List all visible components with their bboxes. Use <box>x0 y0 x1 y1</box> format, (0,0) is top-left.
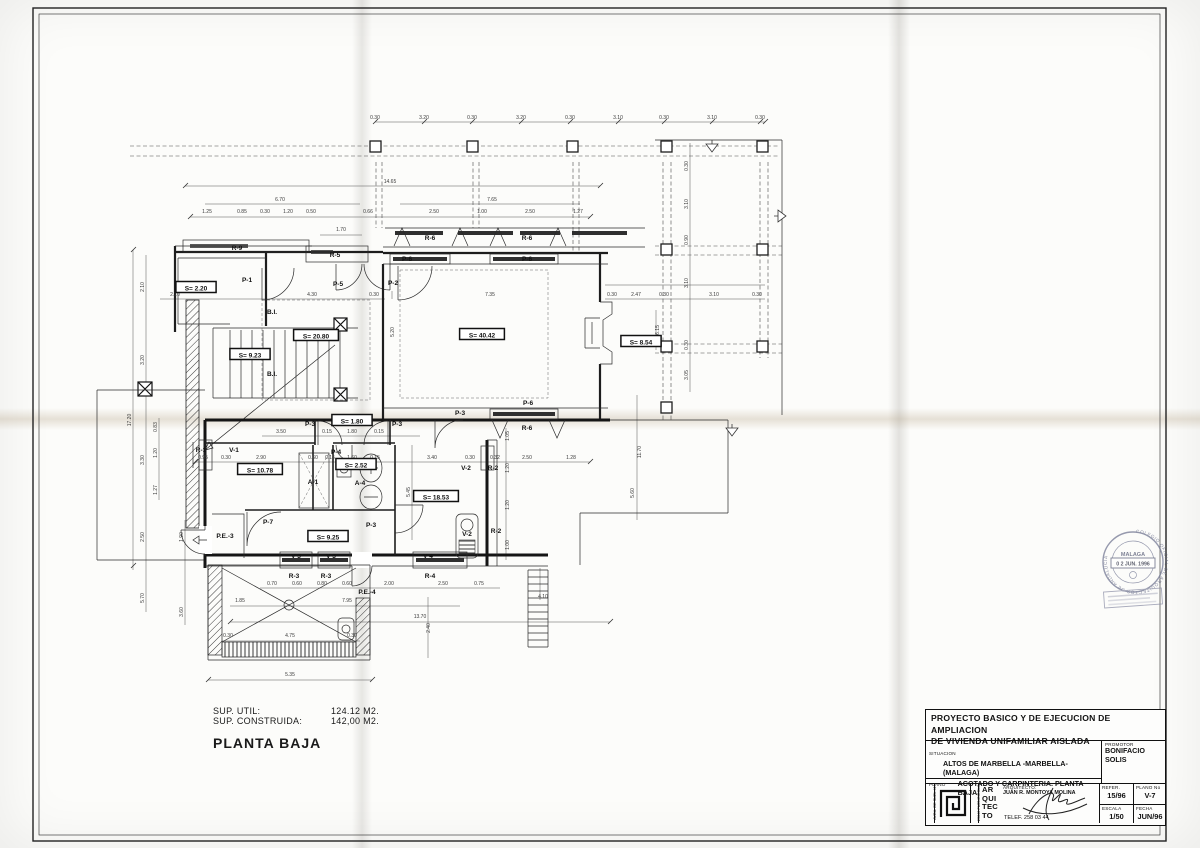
dimension-label: 1.85 <box>235 598 245 604</box>
dimension-label: 0.60 <box>342 581 352 587</box>
opening-label: P-3 <box>305 421 316 428</box>
dimension-label: 7.65 <box>487 197 497 203</box>
dimension-label: 2.50 <box>522 455 532 461</box>
dimension-label: 0.15 <box>374 429 384 435</box>
dimension-label: 0.30 <box>755 115 765 121</box>
opening-label: R-3 <box>321 573 332 580</box>
dimension-label: 5.20 <box>390 327 396 337</box>
opening-label: P-3 <box>366 522 377 529</box>
opening-label: P-3 <box>455 410 466 417</box>
opening-label: R-6 <box>425 235 436 242</box>
dimension-label: 6.70 <box>275 197 285 203</box>
promotor-cell: PROMOTOR BONIFACIO SOLIS <box>1102 741 1165 783</box>
room-area-label: S= 9.23 <box>230 349 270 360</box>
dimension-label: 4.30 <box>307 292 317 298</box>
arquitecto-wordmark: AR QUI TEC TO <box>979 784 1001 823</box>
dimension-label: 0.66 <box>363 209 373 215</box>
dimension-label: 1.25 <box>202 209 212 215</box>
dimension-label: 0.15 <box>322 429 332 435</box>
dimension-label: 0.30 <box>684 340 690 350</box>
fecha-value: JUN/96 <box>1136 812 1164 821</box>
opening-label: R-1 <box>196 447 207 454</box>
plano-no-cell: PLANO No V-7 <box>1133 784 1166 804</box>
dimension-label: 0.30 <box>221 455 231 461</box>
refer-cell: REFER. 15/96 <box>1100 784 1133 804</box>
dimension-label: 7.35 <box>485 292 495 298</box>
project-title-line1: PROYECTO BASICO Y DE EJECUCION DE AMPLIA… <box>931 713 1160 736</box>
opening-label: P-7 <box>263 519 274 526</box>
dimension-label: 5.35 <box>285 672 295 678</box>
opening-label: R-6 <box>522 425 533 432</box>
plano-no-value: V-7 <box>1136 791 1164 800</box>
room-area-text: S= 9.23 <box>239 353 262 360</box>
dimension-label: 5.70 <box>140 593 146 603</box>
opening-label: P.E.-4 <box>358 589 376 596</box>
dimension-label: 2.40 <box>426 623 432 633</box>
dimension-label: 4.75 <box>285 633 295 639</box>
situacion-value2: (MALAGA) <box>943 768 979 777</box>
opening-label: R-5 <box>330 252 341 259</box>
dimension-label: 3.10 <box>684 199 690 209</box>
dimension-label: 2.00 <box>384 581 394 587</box>
dimension-label: 5.45 <box>406 487 412 497</box>
opening-label: V-1 <box>229 447 239 454</box>
opening-label: A-4 <box>355 480 366 487</box>
opening-label: P-1 <box>242 277 253 284</box>
opening-label: P-3 <box>392 421 403 428</box>
dimension-label: 3.10 <box>709 292 719 298</box>
entrance-and-stairs <box>97 240 432 560</box>
opening-label: B.I. <box>267 371 277 378</box>
dimension-label: 1.00 <box>505 540 511 550</box>
address-left: AVDA. DE SUEL 41 <box>933 784 937 822</box>
dimension-label: 3.20 <box>419 115 429 121</box>
room-area-label: S= 2.20 <box>176 282 216 293</box>
dimension-label: 2.90 <box>256 455 266 461</box>
opening-label: R-2 <box>491 528 502 535</box>
opening-label: P-6 <box>523 400 534 407</box>
dimension-label: 1.05 <box>505 431 511 441</box>
pergola-columns <box>370 141 768 413</box>
room-area-text: S= 40.42 <box>469 333 496 340</box>
room-area-label: S= 40.42 <box>460 329 505 340</box>
opening-label: P.E.-3 <box>216 533 234 540</box>
dimension-label: 0.90 <box>684 235 690 245</box>
room-area-text: S= 20.80 <box>303 334 330 341</box>
surface-notes: SUP. UTIL: 124.12 M2. SUP. CONSTRUIDA: 1… <box>213 706 379 751</box>
drawing-sheet: 0.303.200.303.200.303.100.303.100.3014.6… <box>0 0 1200 848</box>
dimension-label: 14.65 <box>384 179 397 185</box>
room-area-label: S= 9.25 <box>308 531 348 542</box>
address-right-strip: 29640 FUENGIROLA <box>971 784 979 823</box>
dimension-label: 1.80 <box>347 429 357 435</box>
room-area-text: S= 1.80 <box>341 419 364 426</box>
studio-logo <box>935 784 971 823</box>
opening-label: P-6 <box>402 256 413 263</box>
dimension-label: 0.95 <box>198 455 208 461</box>
opening-label: V-4 <box>423 553 433 560</box>
approval-stamp: COLEGIO OFICIAL DE ARQUITECTOS DE ANDALU… <box>1103 529 1169 608</box>
dimension-label: 2.50 <box>429 209 439 215</box>
sup-util-label: SUP. UTIL: <box>213 706 331 716</box>
ref-cells: REFER. 15/96 PLANO No V-7 ESCALA 1/50 FE… <box>1099 784 1165 823</box>
dimension-label: 1.28 <box>566 455 576 461</box>
situacion-cell: SITUACION ALTOS DE MARBELLA -MARBELLA- (… <box>926 741 1101 779</box>
dimension-lines <box>131 119 768 682</box>
dimension-label: 0.30 <box>659 115 669 121</box>
signature <box>1009 784 1099 823</box>
opening-label: P-2 <box>388 280 399 287</box>
room-area-labels: S= 2.20S= 20.80S= 9.23S= 40.42S= 8.54S= … <box>176 282 661 542</box>
dimension-label: 0.50 <box>306 209 316 215</box>
dimension-label: 0.60 <box>292 581 302 587</box>
dimension-label: 0.83 <box>153 422 159 432</box>
dimension-label: 0.30 <box>684 161 690 171</box>
opening-label: R-9 <box>232 245 243 252</box>
room-area-label: S= 20.80 <box>294 330 339 341</box>
fecha-label: FECHA <box>1136 806 1164 811</box>
situacion-label: SITUACION <box>929 751 956 756</box>
room-area-text: S= 18.53 <box>423 495 450 502</box>
dimension-label: 3.20 <box>140 355 146 365</box>
plano-no-label: PLANO No <box>1136 785 1164 790</box>
escala-cell: ESCALA 1/50 <box>1100 804 1133 824</box>
greek-key-logo-icon <box>938 788 968 820</box>
dimension-label: 1.27 <box>153 485 159 495</box>
opening-label: V-2 <box>462 531 472 538</box>
opening-label: R-6 <box>522 235 533 242</box>
dimension-label: 0.75 <box>474 581 484 587</box>
opening-label: P-5 <box>333 281 344 288</box>
dimension-label: 7.95 <box>342 598 352 604</box>
room-area-label: S= 10.78 <box>238 464 283 475</box>
dimension-label: 0.30 <box>565 115 575 121</box>
dimension-label: 17.20 <box>127 414 133 427</box>
dimension-label: 3.60 <box>179 607 185 617</box>
refer-label: REFER. <box>1102 785 1131 790</box>
opening-label: R-2 <box>488 465 499 472</box>
plan-title: PLANTA BAJA <box>213 735 379 751</box>
level-marker-icons <box>706 140 786 436</box>
dimension-label: 0.30 <box>369 292 379 298</box>
room-area-text: S= 2.52 <box>345 463 368 470</box>
dimension-label: 0.30 <box>370 115 380 121</box>
room-area-label: S= 1.80 <box>332 415 372 426</box>
title-block: PROYECTO BASICO Y DE EJECUCION DE AMPLIA… <box>925 709 1166 826</box>
room-area-label: S= 18.53 <box>414 491 459 502</box>
room-area-text: S= 9.25 <box>317 535 340 542</box>
opening-label: A-1 <box>308 479 319 486</box>
dimension-label: 0.30 <box>607 292 617 298</box>
opening-label: B.I. <box>267 309 277 316</box>
room-area-text: S= 2.20 <box>185 286 208 293</box>
dimension-label: 4.10 <box>538 594 548 600</box>
refer-value: 15/96 <box>1102 791 1131 800</box>
fecha-cell: FECHA JUN/96 <box>1133 804 1166 824</box>
dimension-label: 2.50 <box>140 532 146 542</box>
stamp-date: 0 2 JUN. 1996 <box>1116 562 1150 568</box>
stamp-city: MALAGA <box>1121 552 1145 558</box>
living-room <box>205 228 645 448</box>
opening-label: V-2 <box>461 465 471 472</box>
dimension-label: 2.50 <box>438 581 448 587</box>
dimension-label: 0.30 <box>465 455 475 461</box>
dimension-label: 1.20 <box>153 448 159 458</box>
architect-cell: ARQUITECTO: JUAN R. MONTOYA MOLINA TELEF… <box>1001 784 1099 823</box>
dimension-label: 3.10 <box>613 115 623 121</box>
dimension-label: 6.15 <box>655 325 661 335</box>
dimension-label: 3.30 <box>140 455 146 465</box>
dimension-label: 1.90 <box>179 532 185 542</box>
escala-label: ESCALA <box>1102 806 1131 811</box>
opening-label: V-3 <box>291 553 301 560</box>
dimension-label: 3.10 <box>684 278 690 288</box>
dimension-label: 2.47 <box>631 292 641 298</box>
dimension-label: 0.80 <box>317 581 327 587</box>
opening-label: R-3 <box>289 573 300 580</box>
room-area-text: S= 10.78 <box>247 468 274 475</box>
dimension-label: 11.70 <box>637 446 643 458</box>
opening-label: P-6 <box>522 256 533 263</box>
dimension-label: 1.20 <box>505 500 511 510</box>
dimension-label: 0.85 <box>237 209 247 215</box>
sup-construida-value: 142,00 M2. <box>331 716 379 726</box>
dimension-label: 0.70 <box>267 581 277 587</box>
dimension-label: 1.20 <box>283 209 293 215</box>
dimension-label: 2.10 <box>140 282 146 292</box>
dimension-label: 3.50 <box>276 429 286 435</box>
dimension-label: 0.60 <box>308 455 318 461</box>
dimension-label: 3.05 <box>684 370 690 380</box>
dimension-label: 0.30 <box>347 633 357 639</box>
room-area-label: S= 8.54 <box>621 336 661 347</box>
dimension-label: 0.32 <box>490 455 500 461</box>
address-right: 29640 FUENGIROLA <box>977 784 981 822</box>
escala-value: 1/50 <box>1102 812 1131 821</box>
dimension-label: 13.70 <box>414 614 427 620</box>
dimension-label: 1.00 <box>477 209 487 215</box>
room-area-label: S= 2.52 <box>336 459 376 470</box>
wordmark-to: TO <box>982 812 1000 821</box>
address-left-strip: AVDA. DE SUEL 41 <box>926 784 935 823</box>
sup-construida-label: SUP. CONSTRUIDA: <box>213 716 331 726</box>
dimension-label: 0.30 <box>659 292 669 298</box>
dimension-label: 3.20 <box>516 115 526 121</box>
dimension-label: 3.40 <box>427 455 437 461</box>
dimension-label: 1.20 <box>505 463 511 473</box>
sup-util-value: 124.12 M2. <box>331 706 379 716</box>
room-area-text: S= 8.54 <box>630 340 653 347</box>
dimension-label: 0.30 <box>223 633 233 639</box>
situacion-value: ALTOS DE MARBELLA -MARBELLA- <box>943 759 1068 768</box>
promotor-value: BONIFACIO SOLIS <box>1105 747 1162 764</box>
opening-label: R-4 <box>425 573 436 580</box>
dimension-label: 5.60 <box>630 488 636 498</box>
project-title: PROYECTO BASICO Y DE EJECUCION DE AMPLIA… <box>926 710 1165 741</box>
dimension-label: 0.30 <box>467 115 477 121</box>
dimension-label: 0.30 <box>260 209 270 215</box>
opening-label: V-3 <box>326 553 336 560</box>
dimension-label: 1.27 <box>573 209 583 215</box>
opening-label: P-4 <box>331 449 342 456</box>
dimension-label: 0.30 <box>752 292 762 298</box>
dimension-label: 2.50 <box>525 209 535 215</box>
dimension-label: 1.70 <box>336 227 346 233</box>
dimension-label: 3.10 <box>707 115 717 121</box>
dimension-labels: 0.303.200.303.200.303.100.303.100.3014.6… <box>127 115 765 678</box>
